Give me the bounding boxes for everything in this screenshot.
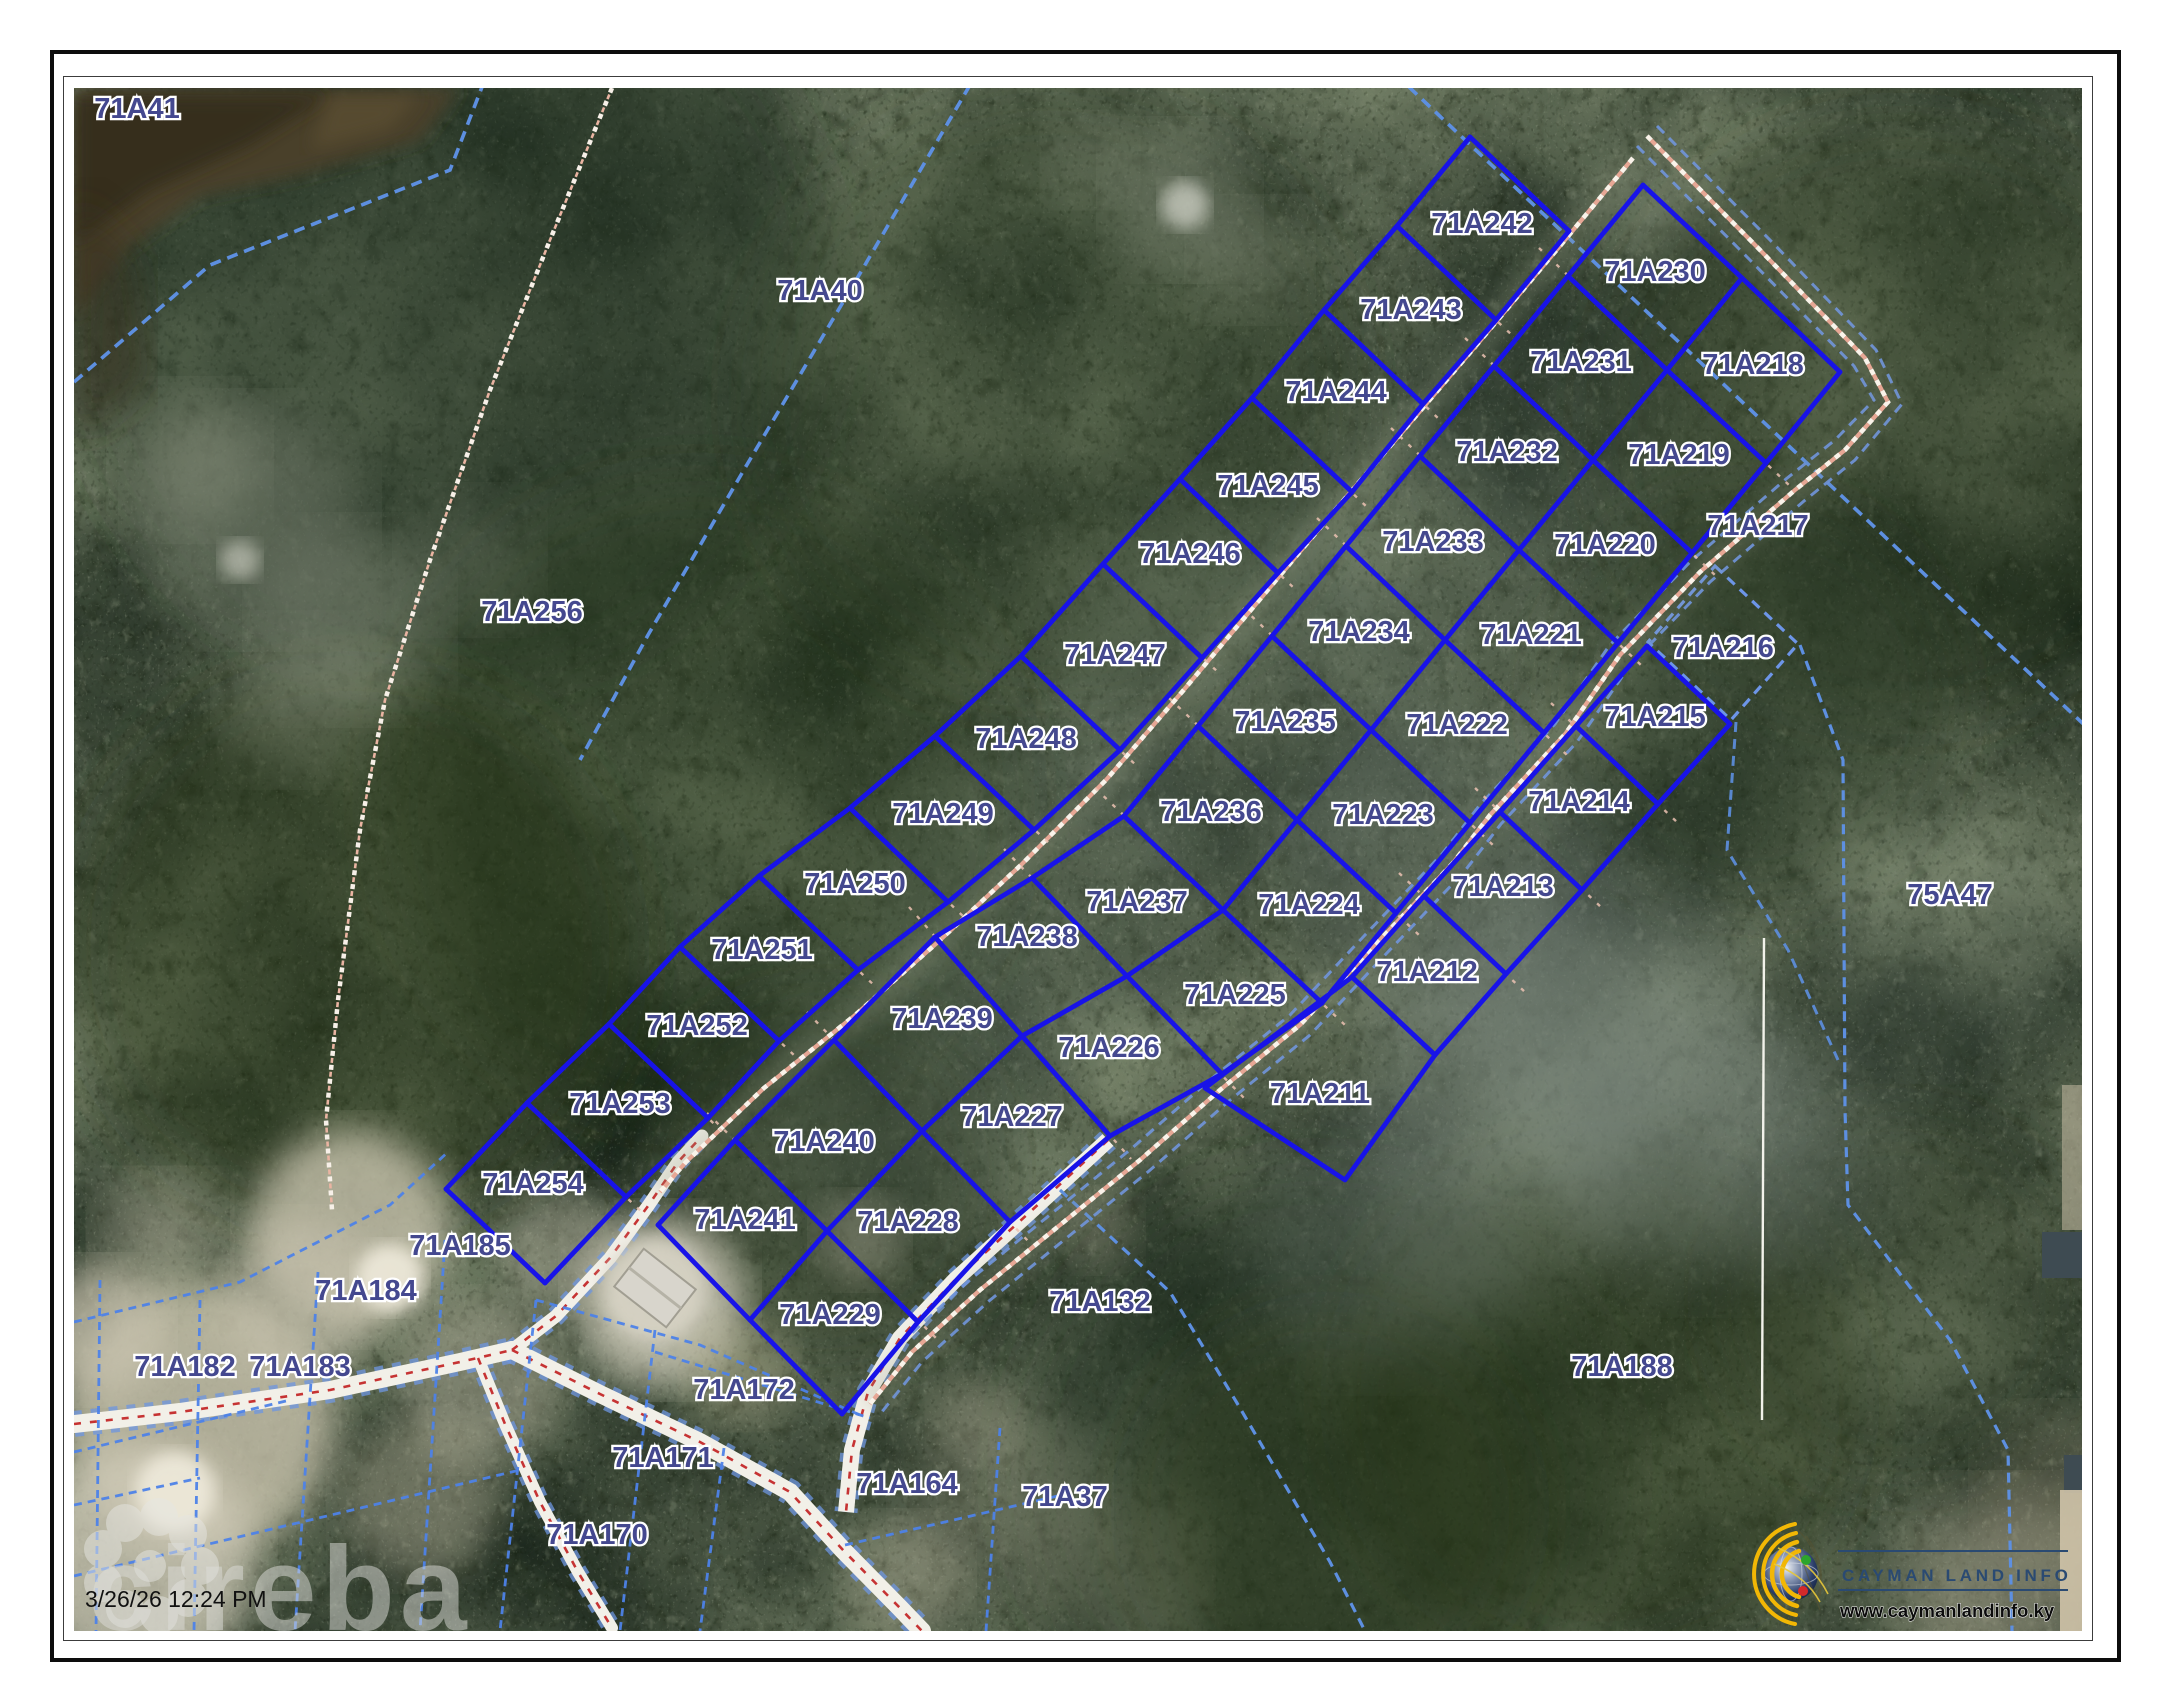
svg-text:71A213: 71A213 [1452,871,1554,903]
svg-text:71A245: 71A245 [1217,470,1319,502]
svg-text:71A240: 71A240 [773,1126,875,1158]
svg-text:3/26/26 12:24 PM: 3/26/26 12:24 PM [85,1586,267,1612]
svg-text:71A37: 71A37 [1022,1481,1107,1513]
svg-text:71A246: 71A246 [1139,538,1241,570]
svg-text:71A214: 71A214 [1528,786,1630,818]
svg-text:cireba: cireba [88,1522,472,1631]
svg-text:71A250: 71A250 [804,868,906,900]
svg-text:www.caymanlandinfo.ky: www.caymanlandinfo.ky [1839,1600,2055,1621]
svg-text:71A238: 71A238 [976,921,1078,953]
svg-text:71A253: 71A253 [569,1088,671,1120]
svg-text:71A170: 71A170 [546,1519,648,1551]
svg-text:71A164: 71A164 [856,1468,958,1500]
svg-text:71A227: 71A227 [961,1101,1063,1133]
svg-text:71A220: 71A220 [1554,529,1656,561]
svg-text:71A40: 71A40 [777,275,862,307]
svg-text:71A223: 71A223 [1332,799,1434,831]
svg-text:71A218: 71A218 [1702,349,1804,381]
svg-text:71A256: 71A256 [481,596,583,628]
svg-text:71A251: 71A251 [711,934,813,966]
svg-text:71A184: 71A184 [315,1275,417,1307]
svg-text:71A231: 71A231 [1530,346,1632,378]
svg-text:71A233: 71A233 [1382,526,1484,558]
svg-text:71A234: 71A234 [1308,616,1410,648]
svg-text:71A185: 71A185 [409,1230,511,1262]
svg-text:71A243: 71A243 [1360,294,1462,326]
svg-text:71A236: 71A236 [1160,796,1262,828]
svg-text:71A219: 71A219 [1628,439,1730,471]
svg-text:71A132: 71A132 [1049,1286,1151,1318]
svg-text:71A248: 71A248 [975,723,1077,755]
svg-text:CAYMAN LAND INFO: CAYMAN LAND INFO [1842,1566,2072,1585]
svg-text:71A229: 71A229 [779,1299,881,1331]
svg-text:71A224: 71A224 [1258,889,1360,921]
svg-text:71A228: 71A228 [857,1206,959,1238]
svg-text:71A239: 71A239 [891,1003,993,1035]
svg-text:71A183: 71A183 [249,1351,351,1383]
svg-text:71A211: 71A211 [1270,1078,1370,1110]
svg-text:71A249: 71A249 [892,798,994,830]
svg-text:71A212: 71A212 [1376,956,1478,988]
svg-text:71A235: 71A235 [1234,706,1336,738]
svg-text:71A182: 71A182 [134,1351,236,1383]
svg-text:71A232: 71A232 [1456,436,1558,468]
svg-text:71A254: 71A254 [482,1168,584,1200]
svg-text:71A241: 71A241 [694,1204,796,1236]
svg-text:71A237: 71A237 [1086,886,1188,918]
svg-text:71A247: 71A247 [1064,639,1166,671]
svg-text:71A242: 71A242 [1431,208,1533,240]
svg-text:71A217: 71A217 [1707,510,1809,542]
svg-text:71A225: 71A225 [1184,979,1286,1011]
svg-text:71A222: 71A222 [1406,709,1508,741]
svg-text:71A230: 71A230 [1604,256,1706,288]
svg-text:71A172: 71A172 [693,1374,795,1406]
svg-text:71A188: 71A188 [1571,1351,1673,1383]
svg-text:71A226: 71A226 [1058,1032,1160,1064]
svg-text:71A221: 71A221 [1480,619,1582,651]
svg-text:71A41: 71A41 [94,93,179,125]
svg-text:75A47: 75A47 [1907,879,1992,911]
svg-text:71A252: 71A252 [646,1010,748,1042]
svg-text:71A171: 71A171 [612,1442,714,1474]
svg-text:71A215: 71A215 [1604,701,1706,733]
svg-text:71A216: 71A216 [1672,632,1774,664]
svg-text:71A244: 71A244 [1285,376,1387,408]
